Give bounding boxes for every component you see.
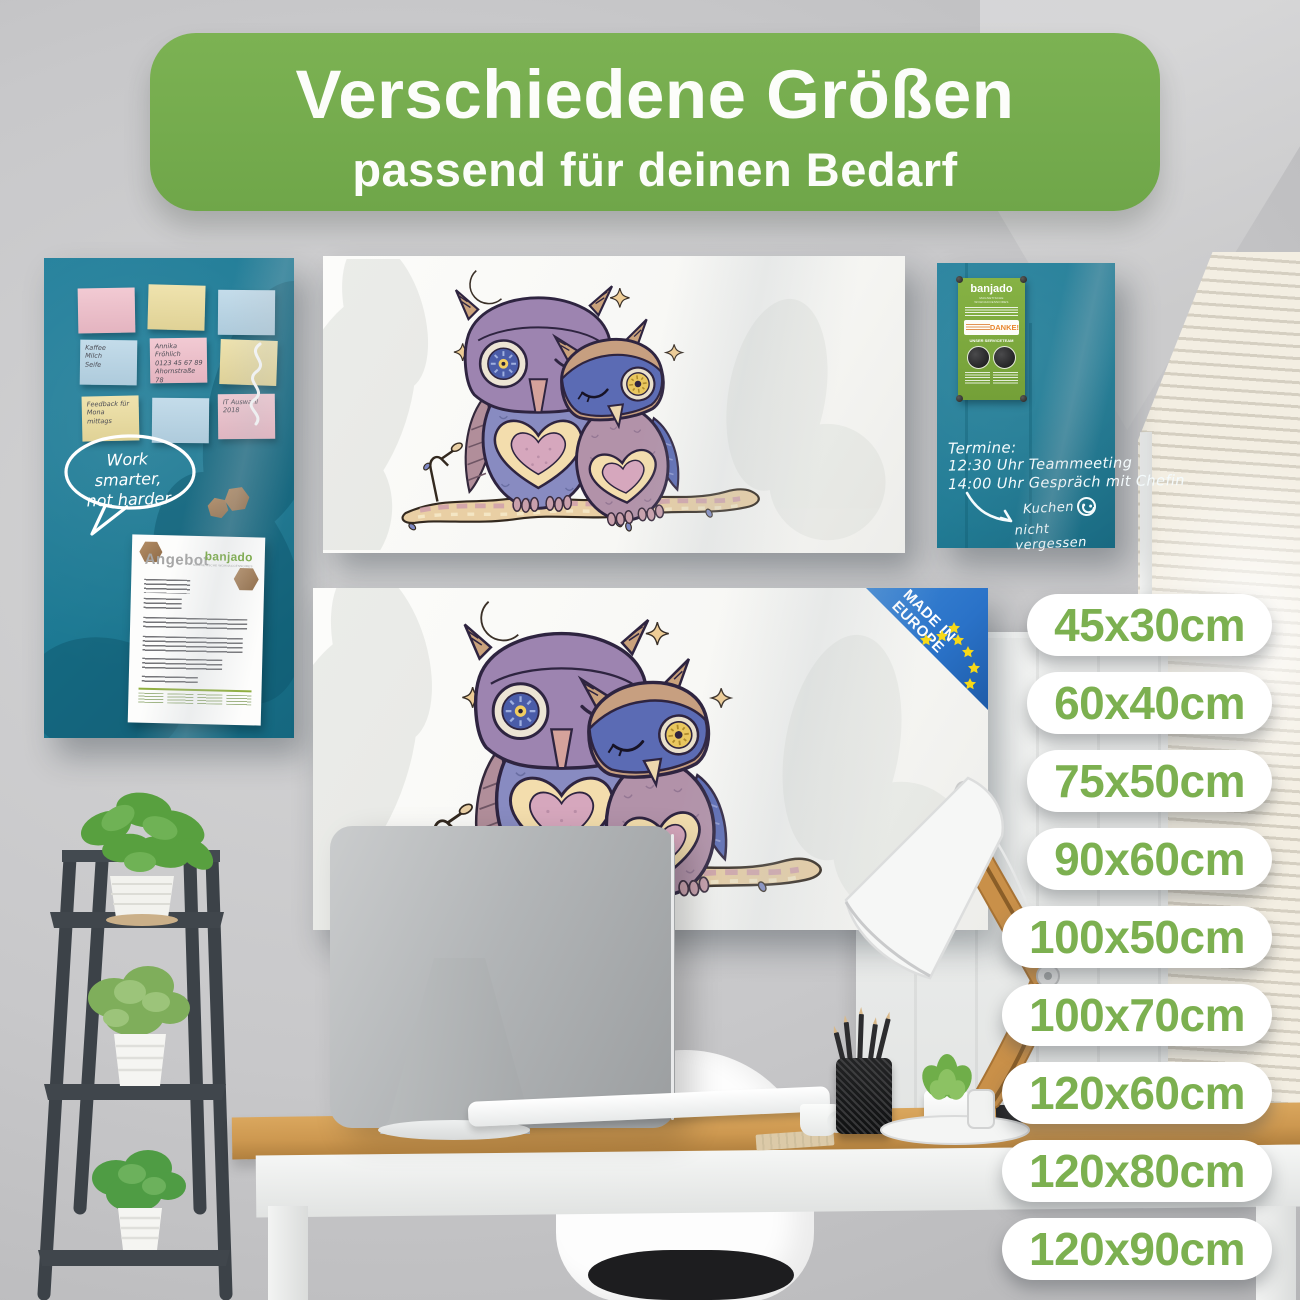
plant-small: [92, 1150, 186, 1250]
size-pill: 45x30cm: [1027, 594, 1272, 656]
product-marketing-image: Kaffee Milch Seife Annika Fröhlich 0123 …: [0, 0, 1300, 1300]
size-pill: 100x50cm: [1002, 906, 1272, 968]
memo-board-teal-left: Kaffee Milch Seife Annika Fröhlich 0123 …: [44, 258, 294, 738]
owl-artwork: [323, 256, 905, 553]
plant-shelf: [14, 788, 244, 1300]
memo-board-teal-right: banjado MAGNETISCHE WOHNACCESSOIRES DANK…: [937, 263, 1115, 548]
danke-box: DANKE!: [964, 320, 1019, 335]
size-pill: 75x50cm: [1027, 750, 1272, 812]
size-pill: 120x80cm: [1002, 1140, 1272, 1202]
arrow-doodle: [963, 491, 1021, 525]
chair-cushion: [588, 1250, 794, 1300]
magnet-board-owls-small: [323, 256, 905, 553]
size-pill: 120x90cm: [1002, 1218, 1272, 1280]
smiley-icon: [1076, 496, 1097, 517]
sticky-note: [147, 284, 205, 330]
flyer-brand: banjado: [963, 284, 1020, 295]
flyer-tagline: MAGNETISCHE WOHNACCESSOIRES: [963, 296, 1020, 304]
speech-bubble-text: Work smarter, not harder: [73, 448, 183, 512]
size-pill: 120x60cm: [1002, 1062, 1272, 1124]
sticky-note: [78, 288, 136, 334]
schedule-heading: Termine:: [948, 438, 1017, 457]
size-pill: 100x70cm: [1002, 984, 1272, 1046]
sticky-note: Annika Fröhlich 0123 45 67 89 Ahornstraß…: [150, 338, 208, 384]
document-footer: [138, 688, 251, 706]
desk-leg: [268, 1206, 308, 1300]
reminder-word-1: Kuchen: [1023, 500, 1075, 518]
danke-text: DANKE!: [990, 323, 1019, 332]
flyer-text-lines: [965, 307, 1018, 317]
size-pill: 60x40cm: [1027, 672, 1272, 734]
reminder-word-2: nicht vergessen: [1014, 518, 1115, 553]
marker-squiggle: [240, 342, 274, 428]
banjado-flyer: banjado MAGNETISCHE WOHNACCESSOIRES DANK…: [958, 278, 1025, 400]
flyer-footer-columns: [965, 372, 1018, 384]
headline-title: Verschiedene Größen: [150, 55, 1160, 134]
hexagon-magnet: [233, 567, 260, 592]
size-list: 45x30cm 60x40cm 75x50cm 90x60cm 100x50cm…: [1002, 594, 1272, 1280]
size-pill: 90x60cm: [1027, 828, 1272, 890]
plant-bush: [88, 966, 190, 1086]
headline-banner: Verschiedene Größen passend für deinen B…: [150, 33, 1160, 211]
dog-photos: [963, 346, 1020, 369]
lamp-shade: [846, 778, 1003, 978]
headline-subtitle: passend für deinen Bedarf: [150, 142, 1160, 197]
serviceteam-heading: UNSER SERVICETEAM: [963, 338, 1020, 343]
schedule-item-1: 12:30 Uhr Teammeeting: [948, 455, 1133, 474]
offer-document: Angebot banjado MAGNETISCHE WOHNACCESSOI…: [128, 534, 266, 725]
sticky-note: Kaffee Milch Seife: [80, 340, 138, 386]
sticky-note: [218, 290, 275, 335]
banjado-logo: banjado: [205, 549, 253, 564]
